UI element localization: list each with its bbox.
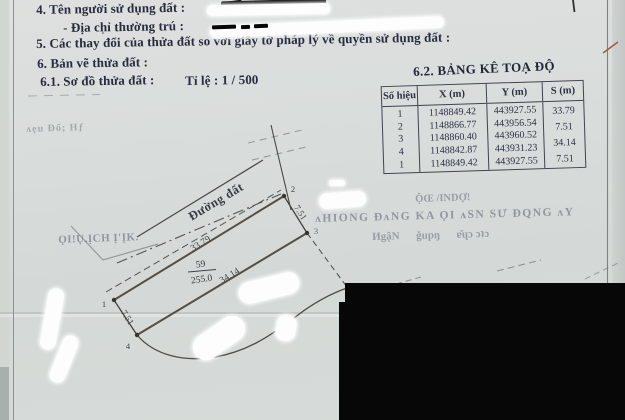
column-header-y: Y (m) [486, 82, 543, 103]
edge-length-top: 33.79 [189, 234, 213, 254]
x-value: 1148849.42 [429, 106, 476, 118]
redaction-block-bottom [339, 302, 625, 420]
x-value: 1148866.77 [429, 119, 476, 131]
y-value: 443960.52 [494, 130, 537, 142]
column-header-s: S (m) [542, 81, 584, 101]
s-value: 34.14 [553, 137, 576, 149]
point-id: 1 [399, 160, 404, 171]
vertex-marker-3 [305, 231, 309, 235]
x-value: 1148842.87 [430, 144, 477, 156]
column-header-id: Số hiệu [382, 86, 418, 106]
scanned-document-page: ʌẹu Đổ; Hƒ ỌI!Ụ.ỊCH Ị'ỊK. ỘŒ /INDỢ! ʌHIO… [0, 0, 625, 420]
point-id: 4 [399, 147, 404, 158]
redaction-smudge-address [241, 24, 250, 28]
id-column: 1 2 3 4 1 [382, 106, 419, 173]
coordinate-table: Số hiệu X (m) Y (m) S (m) 1 2 3 4 1 1148… [381, 80, 587, 174]
point-id: 2 [398, 121, 403, 132]
vertex-label-3: 3 [314, 226, 318, 236]
vertex-label-1: 1 [102, 299, 106, 309]
x-value: 1148860.40 [430, 132, 477, 144]
y-value: 443927.55 [495, 155, 538, 167]
section-4-label: 4. Tên người sử dụng đất : [36, 0, 185, 18]
edge-length-bottom: 34.14 [218, 266, 242, 286]
section-6-label: 6. Bản vẽ thửa đất : [37, 54, 148, 72]
bleed-corner-lines [71, 226, 158, 260]
vertex-marker-2 [282, 194, 286, 198]
vertex-marker-1 [112, 298, 116, 302]
road-upper-line [137, 160, 263, 237]
redaction-smudge-address [254, 24, 268, 28]
y-value: 443927.55 [494, 104, 537, 116]
vertex-label-2: 2 [291, 184, 295, 194]
x-value: 1148849.42 [430, 157, 477, 169]
y-value: 443956.54 [494, 117, 537, 129]
edge-length-left: 7.51 [119, 308, 136, 327]
bleed-dash-line [252, 146, 310, 160]
vertex-label-4: 4 [126, 341, 131, 351]
parcel-area: 255.0 [190, 274, 213, 287]
x-column: 1148849.42 1148866.77 1148860.40 1148842… [417, 104, 488, 172]
parcel-number: 59 [195, 259, 206, 270]
dotted-rule [28, 95, 100, 97]
red-pen-mark [603, 42, 618, 53]
scale-label: Tỉ lệ : 1 / 500 [185, 72, 259, 89]
edge-length-right: 7.51 [292, 203, 309, 222]
boundary-dashed-from-vertex3 [307, 233, 347, 287]
whiteout-patch [318, 190, 366, 209]
vertex-marker-4 [135, 333, 139, 337]
bleed-dash-line [585, 262, 620, 279]
s-value: 7.51 [555, 121, 573, 133]
s-column: 33.79 7.51 34.14 7.51 [542, 101, 585, 168]
point-id: 3 [398, 134, 403, 145]
whiteout-patch [207, 3, 330, 16]
whiteout-patch [329, 180, 345, 186]
column-header-x: X (m) [417, 84, 487, 105]
redaction-block-bottom [345, 283, 625, 304]
coordinate-table-body: 1 2 3 4 1 1148849.42 1148866.77 1148860.… [382, 101, 585, 173]
y-value: 443931.23 [495, 143, 538, 155]
y-column: 443927.55 443956.54 443960.52 443931.23 … [486, 102, 544, 170]
top-right-tick [573, 0, 575, 12]
point-id: 1 [397, 108, 402, 119]
bleed-dash-line [497, 260, 541, 271]
s-value: 7.51 [556, 153, 574, 165]
s-value: 33.79 [552, 105, 575, 117]
section-6-1-label: 6.1. Sơ đồ thửa đất : [40, 72, 155, 90]
